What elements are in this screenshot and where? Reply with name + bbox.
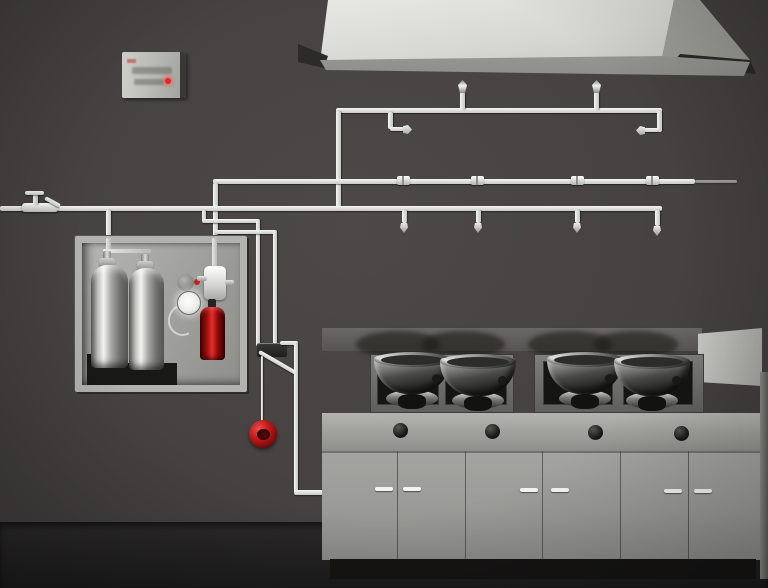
supply-valve-handle (25, 191, 44, 195)
door-handle (403, 487, 421, 491)
plenum-nozzle-2-arm (644, 128, 659, 132)
actuation-jog-a (202, 219, 260, 223)
door-seam (397, 451, 398, 560)
appliance-nozzle-4-stub (655, 210, 660, 226)
actuation-pipe-b (273, 230, 277, 346)
door-seam (688, 451, 689, 560)
pipe-coupling-icon (646, 176, 659, 185)
burner-pedestal (464, 396, 492, 411)
actuator-arm (225, 280, 234, 285)
door-seam (620, 451, 621, 560)
actuator-arm (197, 276, 207, 281)
alarm-bell-icon (249, 420, 277, 448)
door-handle (551, 488, 569, 492)
cartridge-feed-pipe (212, 238, 217, 268)
agent-cylinder-1 (91, 265, 128, 368)
pipe-drop-to-cabinet-left (106, 210, 111, 239)
wok-interior (621, 357, 683, 367)
burner-knob-2 (485, 424, 500, 439)
supply-valve-stem (33, 194, 38, 205)
door-handle (375, 487, 393, 491)
panel-label-area (132, 67, 172, 74)
panel-side-edge (180, 52, 186, 98)
panel-button-row (134, 79, 164, 85)
appliance-nozzle-3-stub (575, 210, 580, 223)
door-seam (465, 451, 466, 560)
release-actuator (204, 266, 226, 300)
right-splash-panel (698, 328, 762, 386)
door-seam (542, 451, 543, 560)
wok-range (322, 328, 768, 580)
duct-nozzle-2-stub (594, 92, 599, 110)
duct-nozzle-1-stub (460, 92, 465, 110)
pipe-mid-run (213, 179, 695, 184)
pipe-coupling-icon (397, 176, 410, 185)
bell-drop-line (261, 356, 263, 424)
range-apron (322, 413, 762, 451)
agent-cylinder-2 (129, 268, 164, 370)
burner-knob-1 (393, 423, 408, 438)
appliance-nozzle-2-stub (476, 210, 481, 223)
range-right-edge (760, 372, 768, 579)
wok-2 (438, 352, 518, 412)
burner-pedestal (571, 394, 599, 409)
burner-knob-4 (674, 426, 689, 441)
burner-knob-3 (588, 425, 603, 440)
regulator-knob (177, 274, 194, 291)
alarm-control-panel (122, 52, 186, 98)
exhaust-hood (298, 0, 768, 84)
actuation-jog-b (215, 230, 277, 234)
pipe-mid-run-extension (695, 180, 737, 183)
panel-status-led-icon (165, 78, 171, 84)
door-handle (664, 489, 682, 493)
panel-red-marking (127, 59, 136, 63)
pipe-supply-run (0, 206, 662, 211)
wok-4 (612, 352, 692, 412)
pressure-gauge-icon (177, 291, 201, 315)
door-handle (520, 488, 538, 492)
pipe-riser-left (336, 111, 341, 209)
burner-pedestal (638, 396, 666, 411)
pipe-top-run (336, 108, 662, 113)
wok-interior (381, 355, 443, 365)
wok-interior (447, 357, 509, 367)
red-cartridge-cylinder (200, 307, 225, 360)
pipe-coupling-icon (471, 176, 484, 185)
actuation-pipe-a (256, 219, 260, 346)
pipe-coupling-icon (571, 176, 584, 185)
wok-handle (672, 376, 681, 385)
range-plinth (330, 559, 756, 579)
burner-pedestal (398, 394, 426, 409)
range-leg (742, 542, 750, 574)
plenum-nozzle-1-arm (390, 127, 404, 131)
wok-handle (498, 376, 507, 385)
gas-line-downpipe (294, 343, 298, 493)
wok-interior (554, 355, 616, 365)
agent-cabinet (75, 236, 247, 392)
kitchen-suppression-scene (0, 0, 768, 588)
appliance-nozzle-1-stub (402, 210, 407, 223)
door-handle (694, 489, 712, 493)
range-leg (328, 548, 336, 580)
